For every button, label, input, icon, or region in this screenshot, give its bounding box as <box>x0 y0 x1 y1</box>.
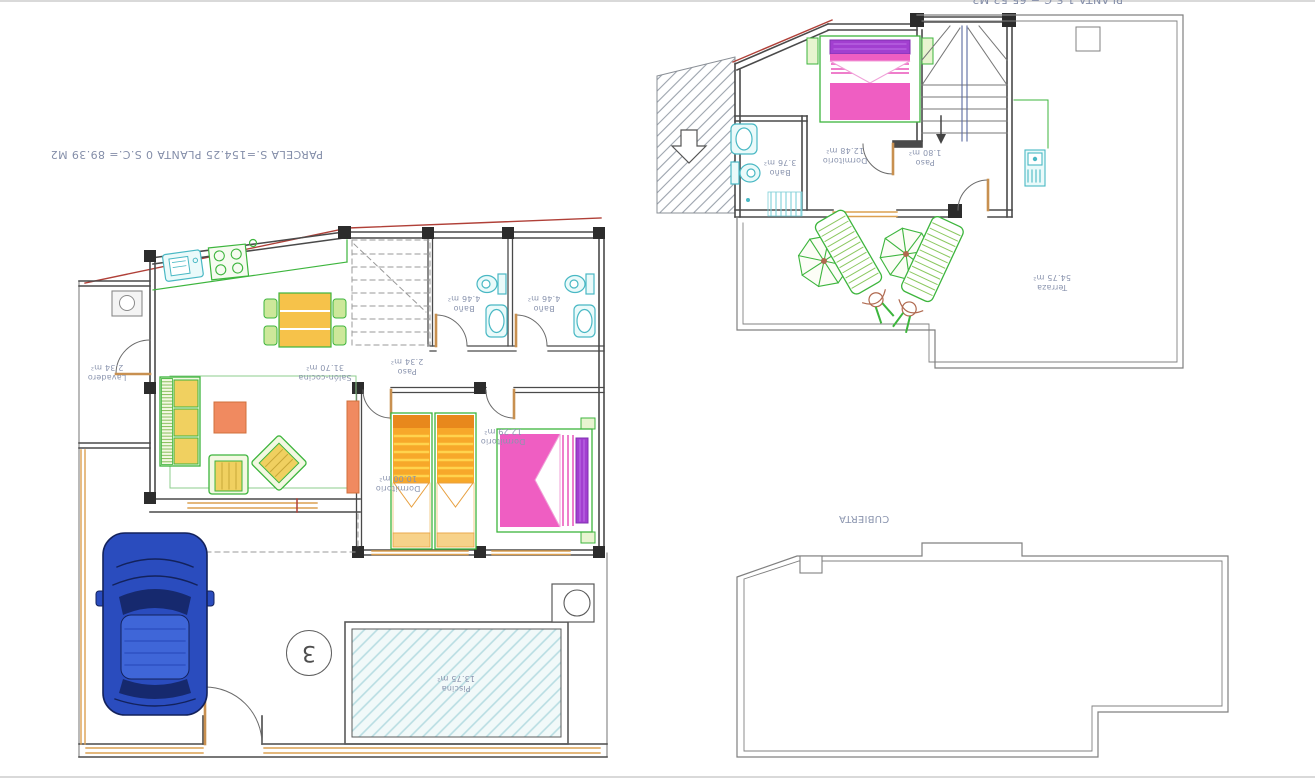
barbecue-icon <box>1025 150 1045 186</box>
person-figure <box>861 287 898 325</box>
sink-icon <box>574 305 595 337</box>
terrace-counter <box>1014 100 1048 148</box>
room-label-salon-cocina: Salón-cocina31.70 m² <box>285 361 365 382</box>
room-label-paso-first: Paso1.80 m² <box>895 146 955 167</box>
plan-roof <box>737 543 1228 757</box>
stove-icon <box>208 244 248 280</box>
floor-plan-drawing <box>0 0 1315 778</box>
coffee-table <box>214 402 246 433</box>
room-label-bano-1: Baño4.46 m² <box>434 292 494 313</box>
toilet-icon <box>565 274 594 294</box>
sideboard <box>347 401 359 493</box>
sofa <box>160 377 200 466</box>
room-label-bano-2: Baño4.46 m² <box>514 292 574 313</box>
armchair <box>251 435 308 492</box>
car <box>96 533 214 715</box>
plan-first-floor <box>657 13 1183 368</box>
roof-outline-outer <box>737 543 1228 757</box>
room-label-piscina: Piscina13.75 m² <box>421 672 491 693</box>
room-label-dormitorio-2: Dormitorio12.29 m² <box>468 425 538 446</box>
first-floor-title-clipped: PLANTA 1 S.C.= 65.52 M2 <box>933 0 1123 7</box>
terrace-boundary <box>737 15 1183 368</box>
stairs-down-arrow-icon <box>936 116 946 144</box>
chimney-marker <box>800 556 822 573</box>
staircase-ground <box>352 240 430 345</box>
armchair <box>209 455 248 494</box>
room-label-dormitorio-first: Dormitorio12.48 m² <box>805 144 885 165</box>
room-label-terraza: Terraza54.75 m² <box>1017 271 1087 292</box>
room-label-paso-ground: Paso2.34 m² <box>377 355 437 376</box>
sink-icon <box>731 124 757 154</box>
dining-table <box>264 293 346 347</box>
washing-machine-icon <box>112 291 142 316</box>
unit-number-badge: 3 <box>286 630 332 676</box>
room-label-bano-first: Baño3.76 m² <box>750 156 810 177</box>
shower-hatch <box>768 192 802 216</box>
bed-double-first <box>807 36 933 122</box>
toilet-icon <box>477 274 506 294</box>
floor-plan-sheet: PARCELA S.=154.25 PLANTA 0 S.C.= 89.39 M… <box>0 0 1315 778</box>
ground-floor-title: PARCELA S.=154.25 PLANTA 0 S.C.= 89.39 M… <box>138 146 323 162</box>
staircase-first <box>922 26 1007 144</box>
kitchen-sink-icon <box>162 250 203 282</box>
room-label-lavadero: Lavadero2.34 m² <box>72 361 142 382</box>
room-label-dormitorio-1: Dormitorio10.00 m² <box>363 472 433 493</box>
pool-drain <box>552 584 594 622</box>
roof-plan-label: CUBIERTA <box>819 512 909 525</box>
